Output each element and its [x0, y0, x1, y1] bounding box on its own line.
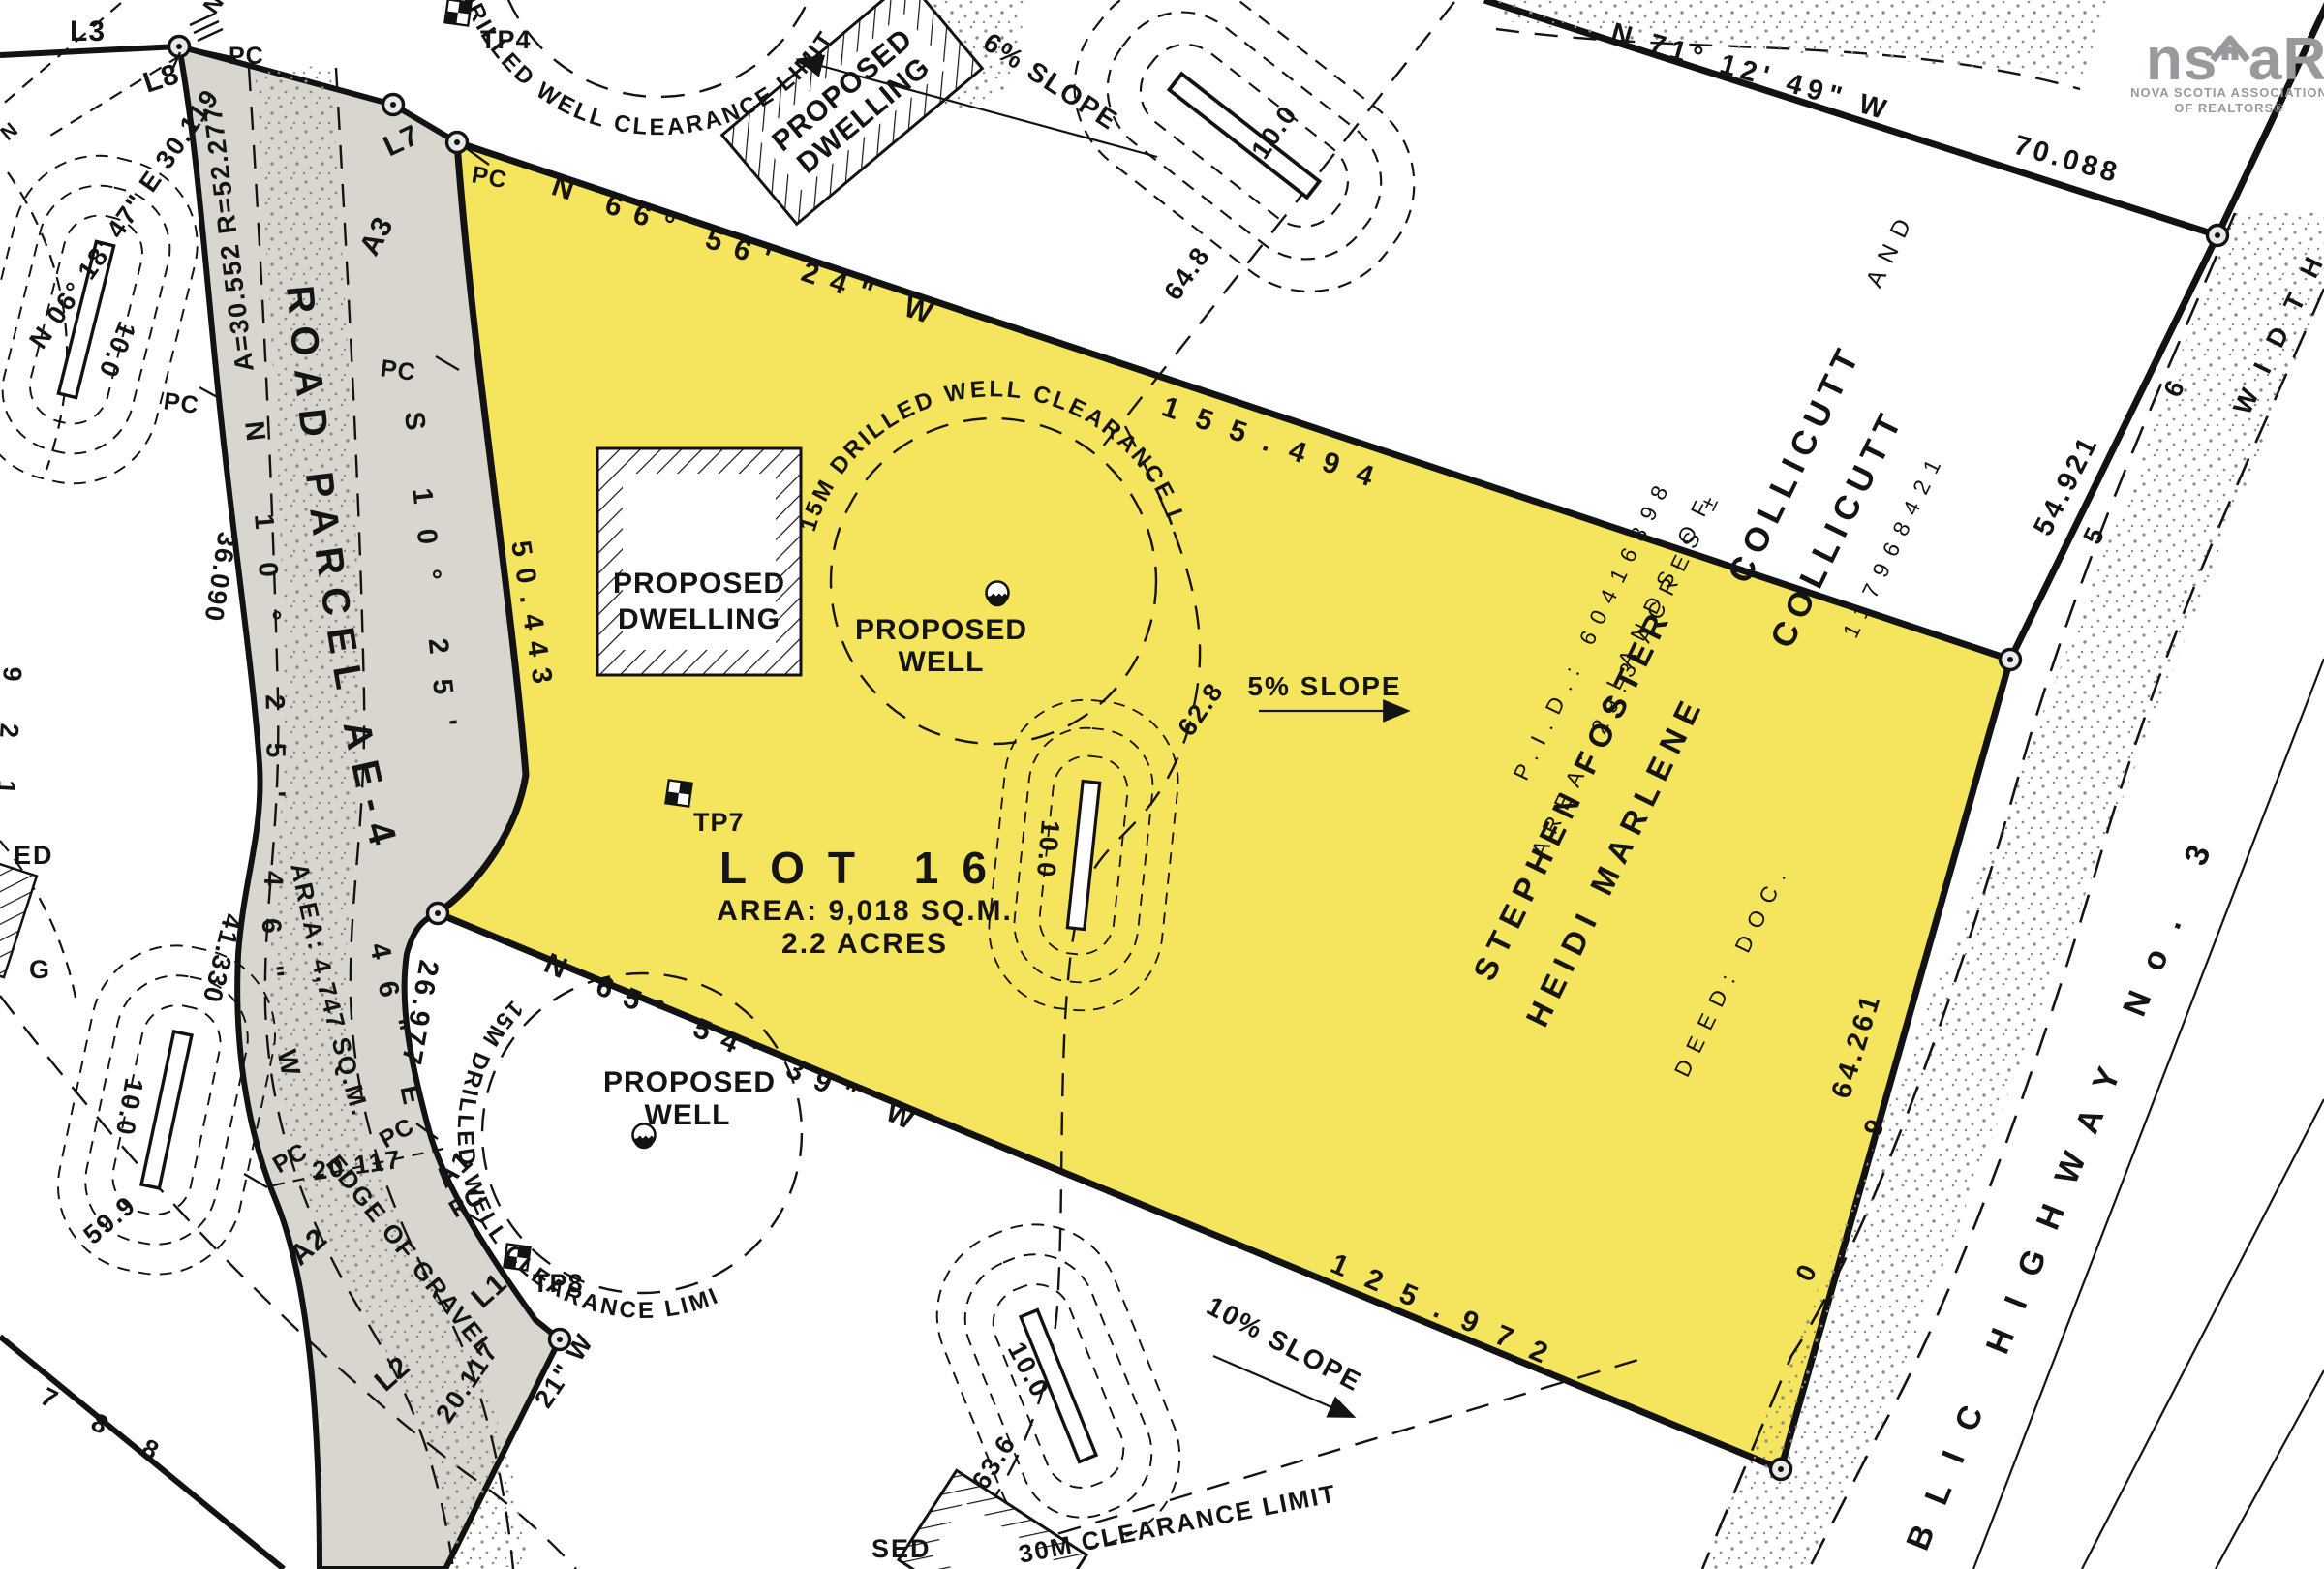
survey-plan-page: PROPOSED DWELLING PROPOSED DWELLING 15M … — [0, 0, 2324, 1569]
lower-well-label-2: WELL — [645, 1099, 731, 1131]
proposed-dwelling-lot16: PROPOSED DWELLING — [597, 448, 801, 675]
survey-plan-map: PROPOSED DWELLING PROPOSED DWELLING 15M … — [0, 0, 2324, 1569]
monument-4 — [2208, 226, 2228, 246]
monument-5 — [2001, 650, 2021, 670]
pc-label-1: PC — [229, 43, 264, 70]
pc-label-3: PC — [379, 354, 417, 386]
nsar-association-line: NOVA SCOTIA ASSOCIATION — [2130, 85, 2324, 100]
tp4-label: TP4 — [480, 25, 532, 54]
nsar-logo-ar: aR — [2248, 26, 2324, 93]
upper-well-label-2: WELL — [899, 646, 985, 678]
tp7-icon — [665, 780, 691, 806]
lot16-acres: 2.2 ACRES — [781, 928, 948, 960]
dwelling-label-2: DWELLING — [618, 603, 780, 635]
monument-6 — [428, 904, 448, 924]
monument-3 — [447, 133, 468, 153]
monument-2 — [383, 95, 404, 115]
pc-label-4: PC — [162, 387, 200, 419]
slope5-label: 5% SLOPE — [1247, 671, 1401, 701]
dim-10-b: 10.0 — [1031, 818, 1065, 879]
tp8-label: TP8 — [533, 1269, 584, 1298]
segment-l3: L3 — [70, 15, 106, 47]
monument-8 — [1771, 1460, 1791, 1480]
lot16-name: LOT 16 — [719, 843, 1010, 893]
fragment-sed: SED — [871, 1534, 932, 1563]
upper-well-icon — [987, 582, 1009, 607]
fragment-ed: ED — [14, 841, 54, 870]
nsar-realtors-line: OF REALTORS® — [2174, 101, 2284, 115]
tp7-label: TP7 — [693, 808, 745, 837]
dwelling-label-1: PROPOSED — [613, 568, 785, 600]
fragment-g: G — [29, 955, 51, 984]
lower-well-label-1: PROPOSED — [603, 1066, 776, 1098]
nsar-logo-ns: ns — [2146, 26, 2217, 93]
upper-well-label-1: PROPOSED — [855, 614, 1027, 646]
lot16-area: AREA: 9,018 SQ.M. — [717, 895, 1013, 927]
